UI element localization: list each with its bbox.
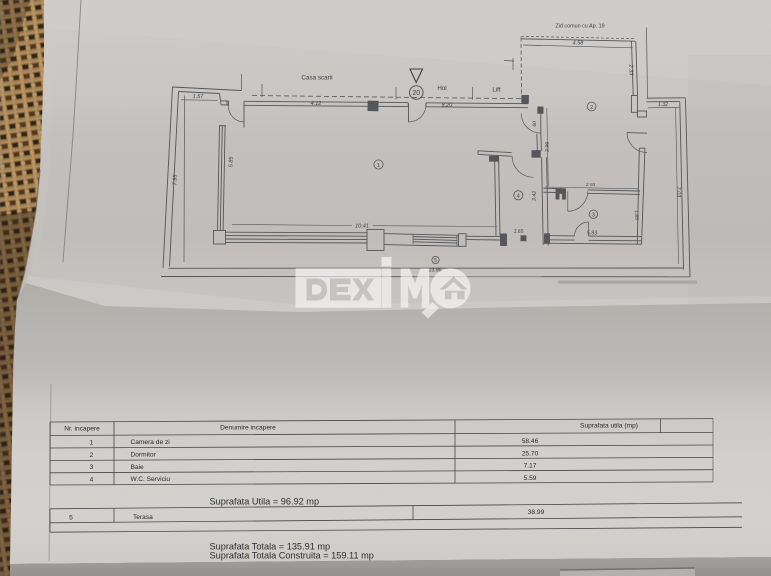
svg-text:38.99: 38.99: [528, 509, 545, 516]
svg-text:5.85: 5.85: [228, 156, 234, 168]
svg-text:5.93: 5.93: [587, 231, 597, 237]
svg-text:4: 4: [517, 194, 520, 200]
svg-text:Baie: Baie: [131, 464, 145, 471]
svg-text:7.95: 7.95: [172, 174, 178, 186]
svg-text:Casa scarii: Casa scarii: [301, 75, 332, 82]
svg-text:Dormitor: Dormitor: [131, 452, 157, 459]
svg-text:7.17: 7.17: [524, 463, 537, 470]
svg-text:Suprafata Totala Construita =: Suprafata Totala Construita = 159.11 mp: [210, 551, 374, 561]
svg-text:Hol: Hol: [437, 85, 446, 92]
svg-text:2: 2: [590, 105, 593, 111]
svg-text:5.59: 5.59: [524, 475, 537, 482]
svg-text:1: 1: [377, 163, 380, 169]
svg-text:1.32: 1.32: [658, 102, 668, 108]
svg-text:Suprafata utila (mp): Suprafata utila (mp): [580, 423, 638, 430]
svg-text:Terasa: Terasa: [133, 514, 153, 521]
svg-text:3: 3: [90, 464, 94, 471]
svg-text:4.58: 4.58: [573, 41, 585, 47]
svg-text:2: 2: [90, 452, 94, 459]
svg-text:Lift: Lift: [492, 87, 501, 94]
svg-text:2.33: 2.33: [627, 64, 633, 77]
svg-text:4.12: 4.12: [311, 101, 322, 107]
svg-text:3.42: 3.42: [532, 191, 538, 201]
svg-text:5: 5: [434, 258, 437, 264]
svg-text:58.46: 58.46: [522, 438, 539, 445]
svg-text:5: 5: [69, 514, 73, 521]
svg-text:Suprafata Utila = 96.92 mp: Suprafata Utila = 96.92 mp: [210, 497, 320, 507]
svg-text:4: 4: [90, 477, 94, 484]
svg-text:7.03: 7.03: [675, 187, 681, 199]
svg-text:1.85: 1.85: [633, 210, 639, 220]
svg-text:Zid comun cu Ap. 19: Zid comun cu Ap. 19: [555, 24, 604, 30]
svg-text:W.C. Serviciu: W.C. Serviciu: [131, 476, 171, 483]
svg-text:3.99: 3.99: [545, 142, 551, 152]
svg-text:1.65: 1.65: [514, 229, 524, 235]
svg-text:1: 1: [90, 439, 94, 446]
svg-text:1.57: 1.57: [193, 94, 205, 100]
svg-text:3: 3: [592, 213, 595, 219]
svg-text:10.41: 10.41: [355, 223, 369, 229]
svg-text:60: 60: [532, 121, 538, 127]
svg-text:8.20: 8.20: [442, 102, 454, 108]
svg-text:25.70: 25.70: [522, 450, 539, 457]
svg-text:Nr. incapere: Nr. incapere: [64, 425, 100, 432]
svg-text:Camera de zi: Camera de zi: [131, 439, 171, 446]
svg-text:2.93: 2.93: [585, 182, 596, 188]
svg-text:20: 20: [412, 90, 420, 97]
svg-text:Denumire incapere: Denumire incapere: [220, 425, 276, 432]
